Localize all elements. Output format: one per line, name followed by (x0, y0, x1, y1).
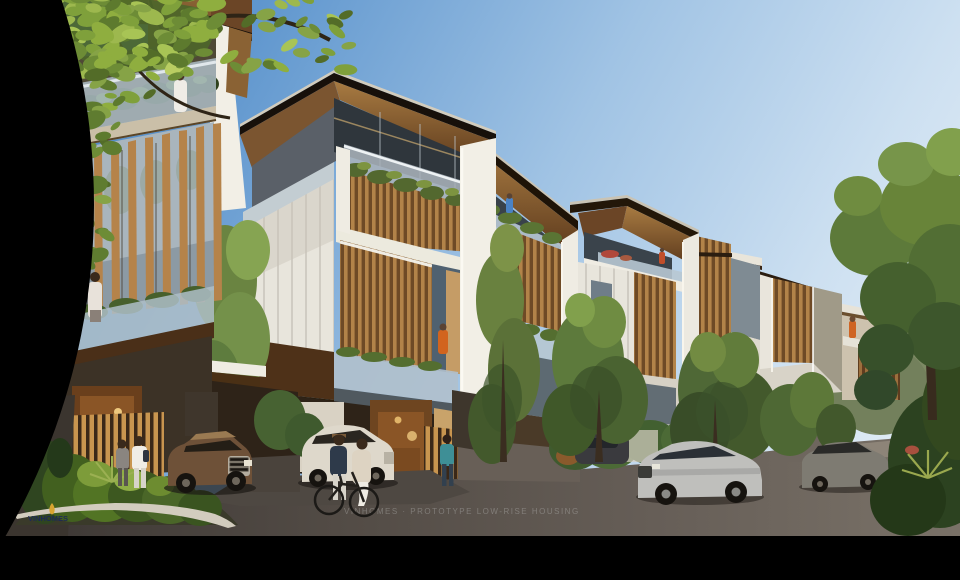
svg-text:VINHOMES · PROTOTYPE LOW-RISE: VINHOMES · PROTOTYPE LOW-RISE HOUSING (344, 507, 580, 516)
svg-text:VINHOMES: VINHOMES (28, 514, 68, 523)
